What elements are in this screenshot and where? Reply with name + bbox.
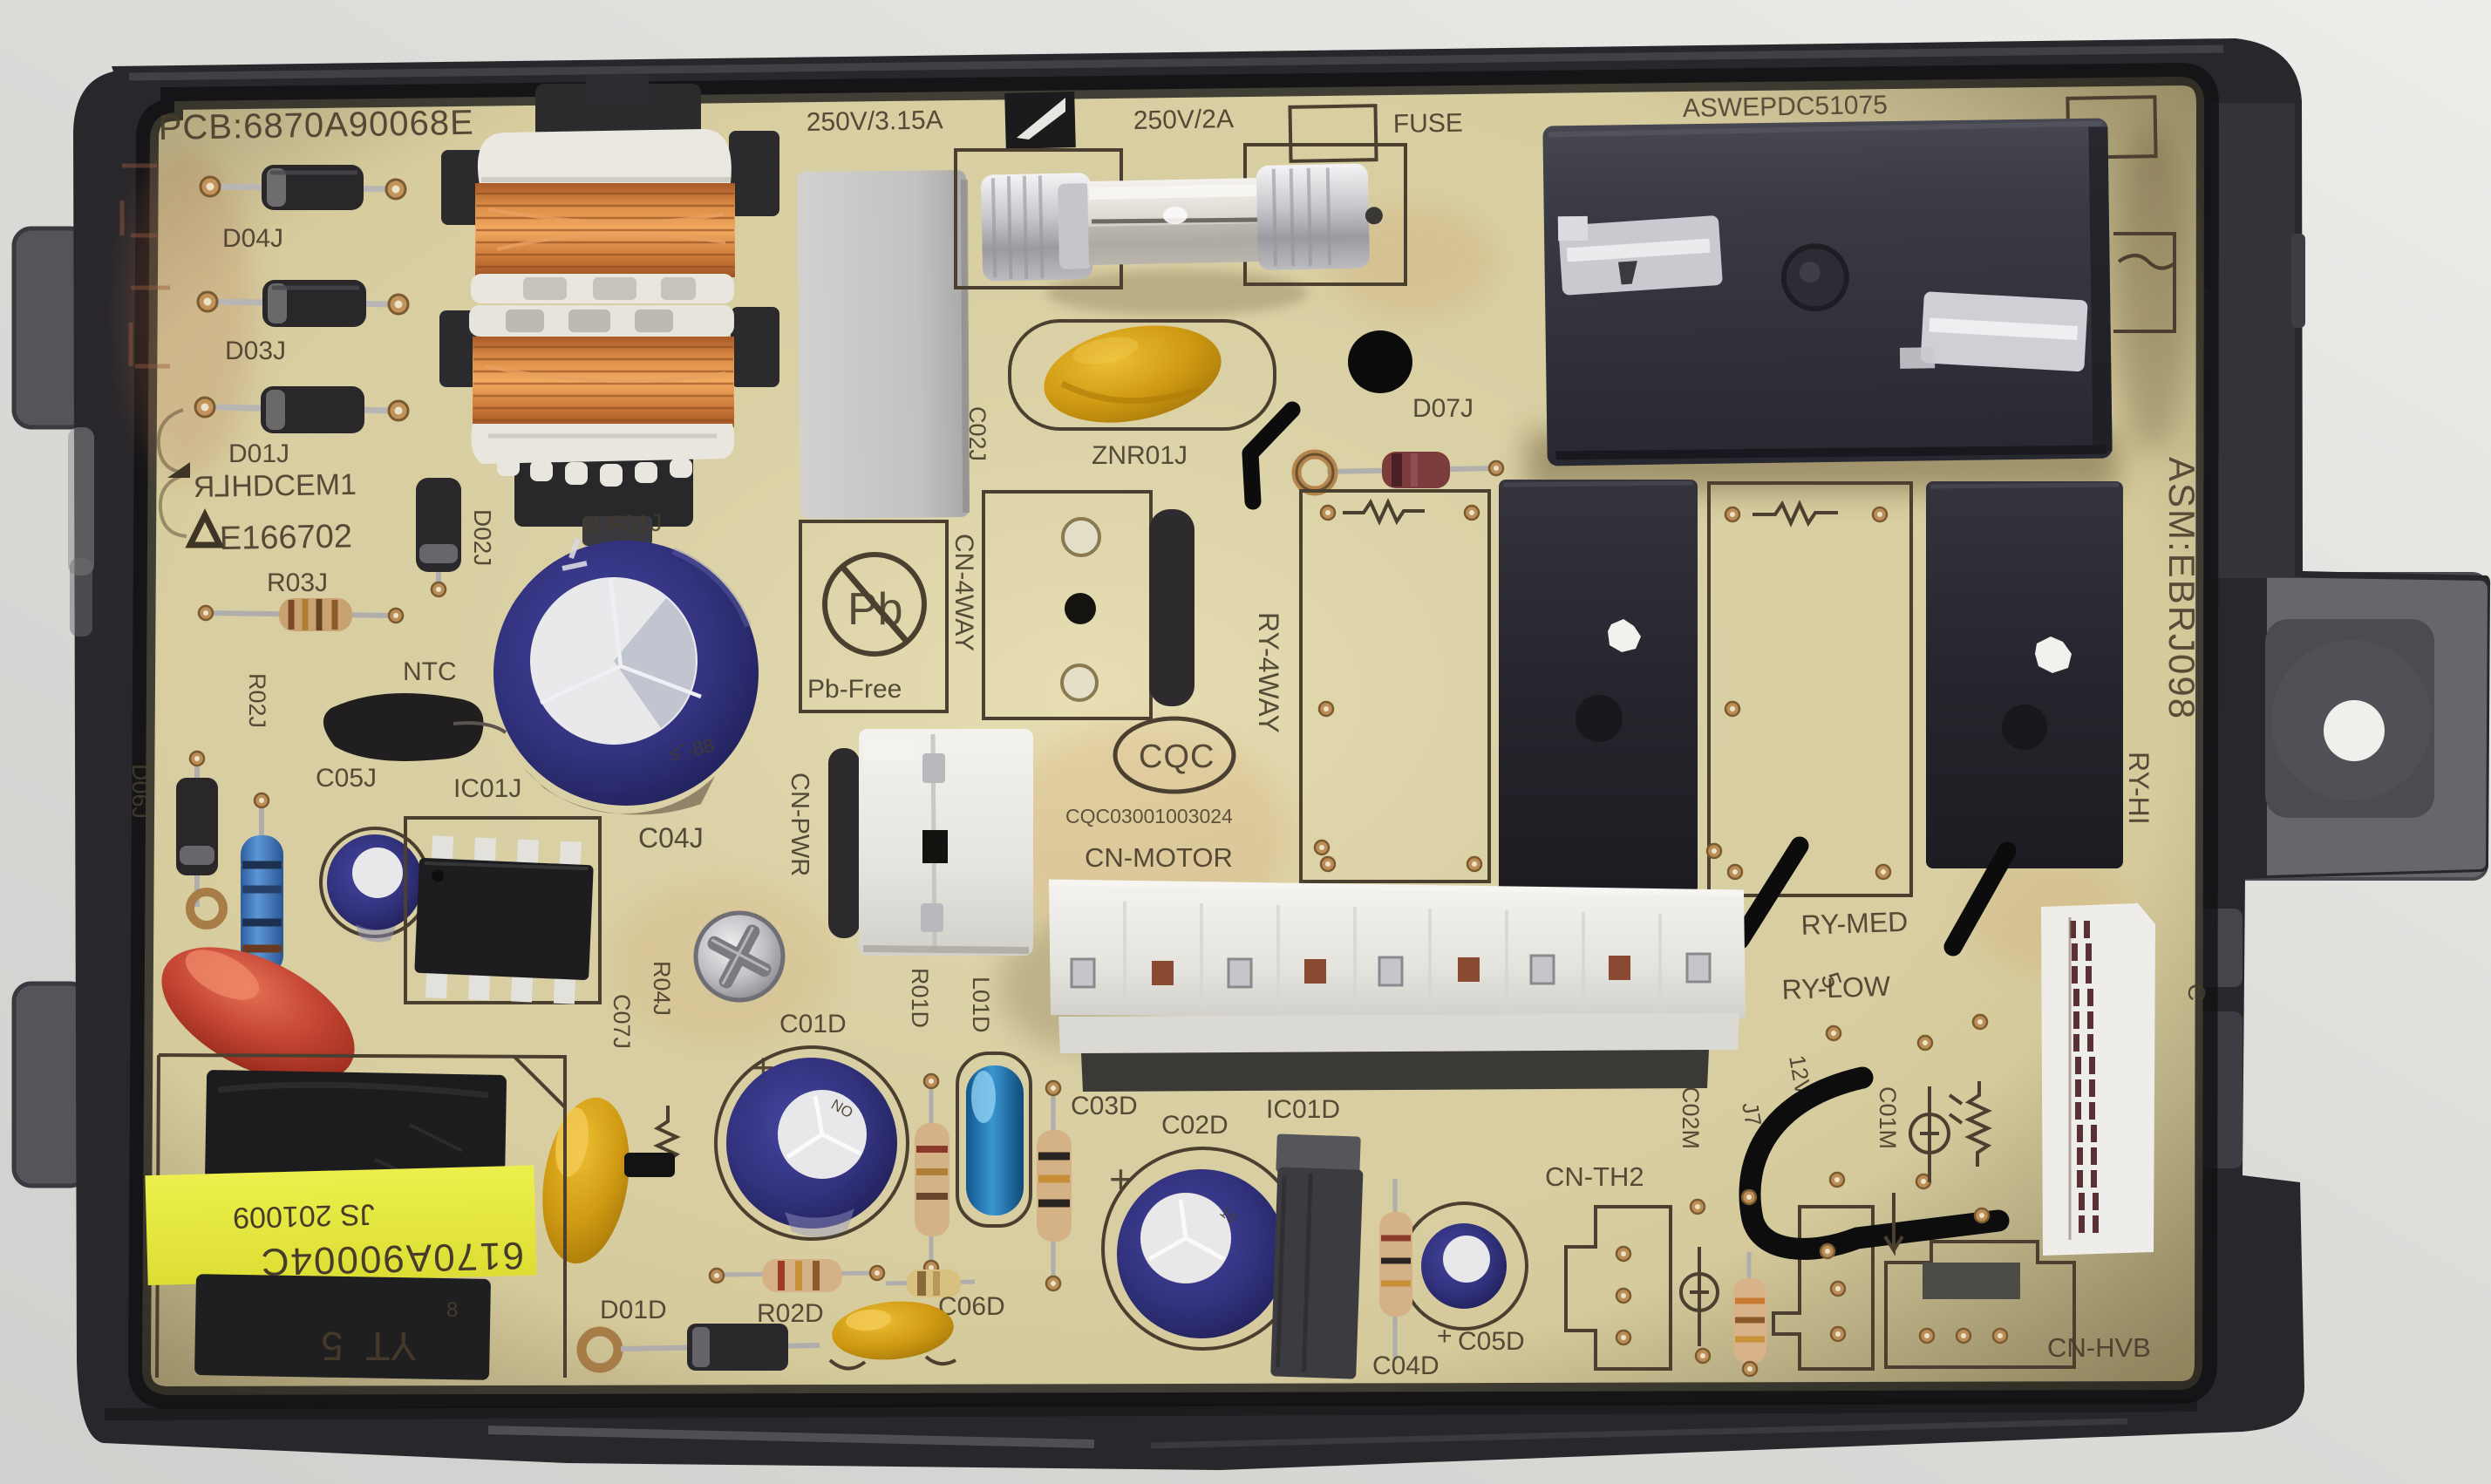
svg-text:C01D: C01D <box>779 1010 847 1038</box>
svg-text:E166702: E166702 <box>219 518 352 557</box>
svg-text:CQC03001003024: CQC03001003024 <box>1065 805 1233 827</box>
svg-text:D07J: D07J <box>1412 394 1474 423</box>
svg-text:Pb-Free: Pb-Free <box>807 675 902 704</box>
svg-text:D06J: D06J <box>127 764 153 819</box>
svg-text:ASWEPDC51075: ASWEPDC51075 <box>1683 91 1889 123</box>
svg-text:R02D: R02D <box>757 1299 824 1328</box>
svg-text:C: C <box>2183 984 2210 1001</box>
svg-text:Я⅃HDCEM1: Я⅃HDCEM1 <box>193 468 357 504</box>
svg-text:NTC: NTC <box>403 657 457 686</box>
svg-text:250V/3.15A: 250V/3.15A <box>807 106 943 137</box>
svg-text:FUSE: FUSE <box>1393 109 1464 139</box>
svg-text:JS 201009: JS 201009 <box>233 1197 376 1234</box>
svg-text:C02M: C02M <box>1678 1086 1704 1149</box>
svg-text:N·F01J: N·F01J <box>582 509 663 539</box>
svg-text:C02D: C02D <box>1161 1111 1228 1140</box>
svg-text:D01D: D01D <box>600 1296 667 1324</box>
svg-text:RY-HI: RY-HI <box>2123 752 2154 825</box>
svg-text:ASM:EBRJ098: ASM:EBRJ098 <box>2161 457 2202 720</box>
svg-text:8: 8 <box>446 1298 458 1322</box>
svg-text:D03J: D03J <box>225 337 286 365</box>
svg-text:IC01D: IC01D <box>1266 1095 1340 1124</box>
svg-text:CN-TH2: CN-TH2 <box>1545 1161 1644 1192</box>
svg-text:CN-4WAY: CN-4WAY <box>949 534 978 651</box>
svg-text:C04D: C04D <box>1372 1351 1439 1380</box>
svg-text:D01J: D01J <box>228 439 289 468</box>
svg-text:RY-4WAY: RY-4WAY <box>1253 612 1284 733</box>
svg-text:C04J: C04J <box>638 822 704 854</box>
svg-text:C03D: C03D <box>1071 1092 1138 1120</box>
svg-text:CN-HVB: CN-HVB <box>2047 1332 2151 1363</box>
svg-text:C07J: C07J <box>609 994 635 1049</box>
svg-text:D04J: D04J <box>222 224 283 253</box>
svg-text:L01D: L01D <box>968 977 994 1033</box>
svg-text:250V/2A: 250V/2A <box>1133 105 1235 135</box>
svg-text:C02J: C02J <box>964 406 990 461</box>
svg-text:RY-MED: RY-MED <box>1800 906 1909 941</box>
svg-text:C01M: C01M <box>1875 1086 1901 1149</box>
svg-text:IC01J: IC01J <box>453 774 521 803</box>
svg-text:C05J: C05J <box>316 764 377 793</box>
svg-text:R02J: R02J <box>244 673 270 728</box>
svg-text:+: + <box>1437 1322 1453 1351</box>
svg-text:R03J: R03J <box>267 568 328 597</box>
svg-text:YT 5: YT 5 <box>321 1324 417 1369</box>
svg-text:R01D: R01D <box>907 968 933 1028</box>
svg-text:CN-PWR: CN-PWR <box>786 773 813 876</box>
svg-text:CN-MOTOR: CN-MOTOR <box>1085 842 1233 873</box>
svg-text:D02J: D02J <box>469 509 496 566</box>
svg-text:R04J: R04J <box>649 961 675 1016</box>
svg-text:CQC: CQC <box>1139 739 1215 775</box>
svg-text:PCB:6870A90068E: PCB:6870A90068E <box>158 104 474 147</box>
svg-text:ZNR01J: ZNR01J <box>1092 441 1188 470</box>
svg-text:C05D: C05D <box>1458 1327 1525 1356</box>
